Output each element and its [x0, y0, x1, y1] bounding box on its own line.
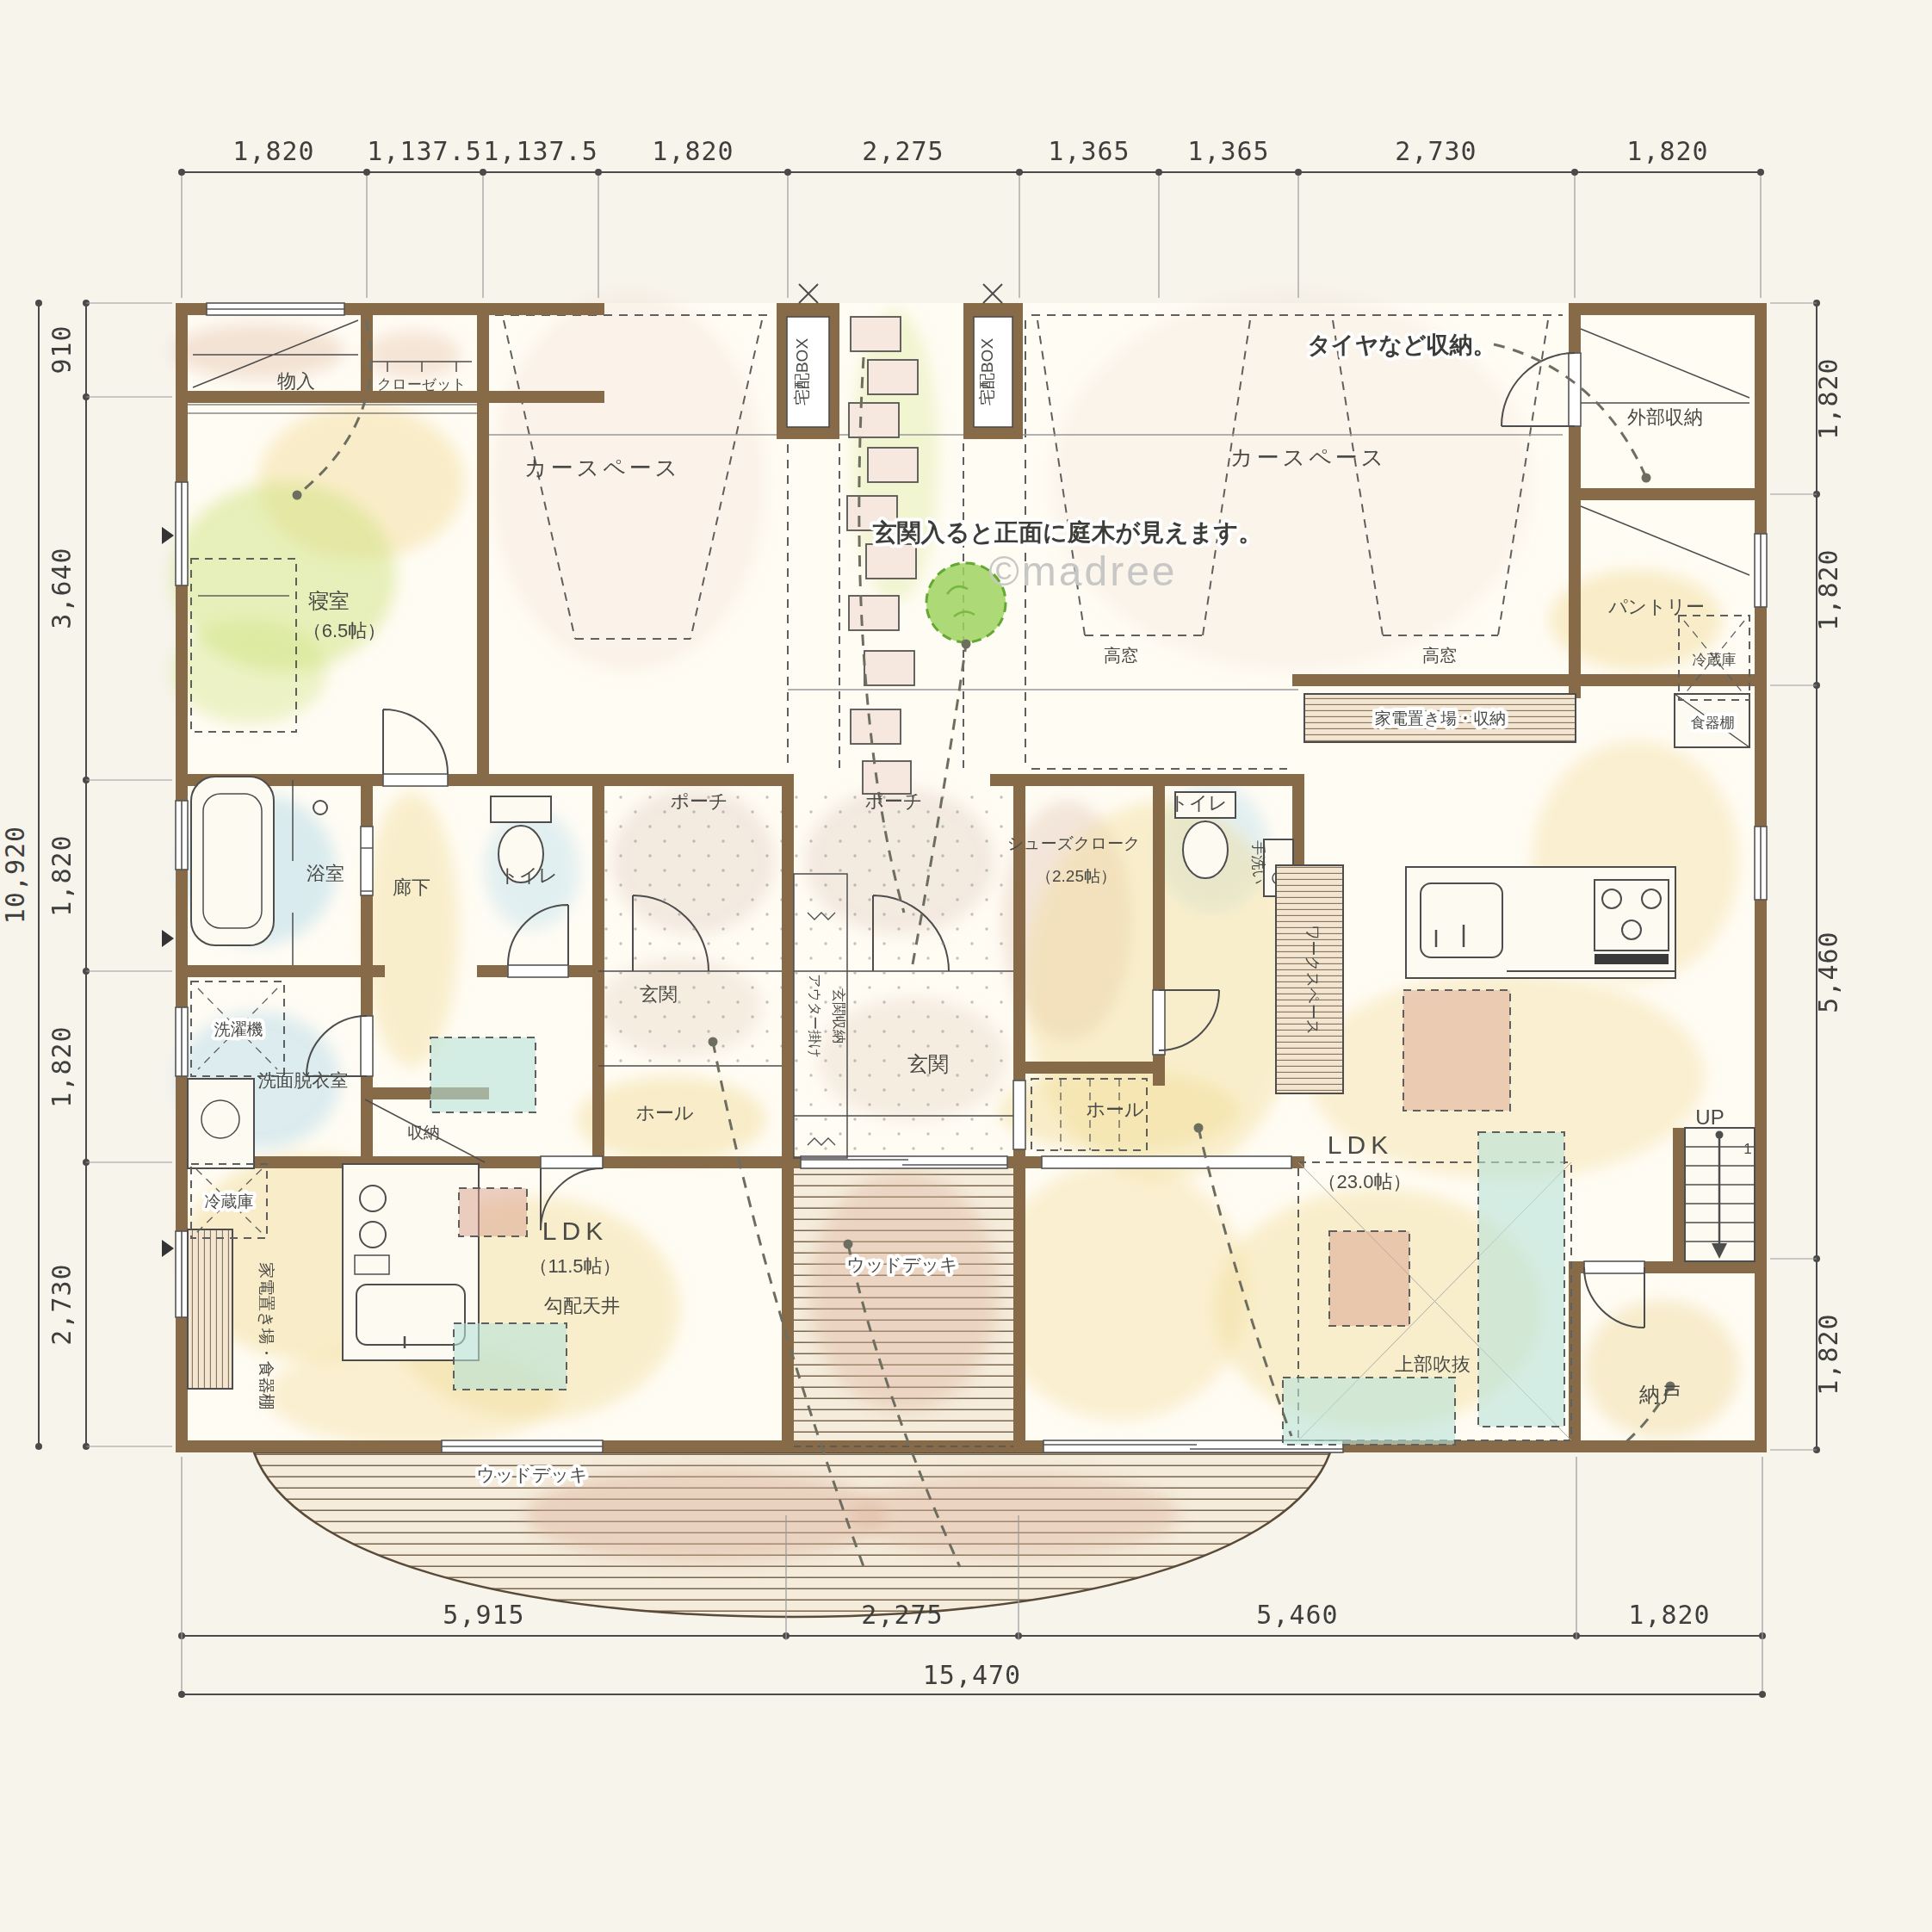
label-up: UP — [1695, 1105, 1724, 1129]
label-shoes-cloak-size: （2.25帖） — [1036, 867, 1117, 885]
label-kobai-tenjo: 勾配天井 — [544, 1295, 620, 1316]
dim-top-0: 1,820 — [232, 136, 314, 166]
sofa-tall — [1478, 1132, 1564, 1427]
toilet-left-tank — [491, 796, 551, 822]
label-nando: 納戸 — [1639, 1383, 1681, 1406]
label-genkan-left: 玄関 — [640, 983, 678, 1005]
label-ldk-right-size: （23.0帖） — [1318, 1171, 1412, 1192]
dim-left-1: 3,640 — [46, 547, 77, 629]
table-left — [459, 1188, 527, 1236]
annotation-garden-view: 玄関入ると正面に庭木が見えます。 — [872, 519, 1263, 546]
dim-left-total: 10,920 — [0, 826, 30, 924]
label-hall-right: ホール — [1086, 1099, 1144, 1120]
label-wood-deck-bottom: ウッドデッキ — [477, 1464, 588, 1484]
dim-bottom-1: 2,275 — [861, 1600, 943, 1630]
label-tearai: 手洗い — [1250, 840, 1266, 884]
label-toilet-right: トイレ — [1169, 792, 1228, 814]
label-shuno: 収納 — [407, 1124, 440, 1142]
label-fridge-right: 冷蔵庫 — [1693, 652, 1737, 668]
dim-right-2: 5,460 — [1813, 931, 1843, 1012]
label-senmen: 洗面脱衣室 — [258, 1070, 349, 1090]
label-ldk-right: LDK — [1328, 1130, 1393, 1159]
dining-table — [1403, 990, 1510, 1111]
label-monoire: 物入 — [277, 370, 315, 392]
vanity — [188, 1079, 254, 1168]
dim-bottom-3: 1,820 — [1628, 1600, 1710, 1630]
dim-right-1: 1,820 — [1813, 548, 1843, 630]
label-gaibu-shuno: 外部収納 — [1627, 406, 1703, 428]
label-pantry: パントリー — [1608, 596, 1705, 617]
dim-top-4: 2,275 — [862, 136, 944, 166]
label-carspace-left: カースペース — [524, 455, 681, 480]
toilet-right-bowl — [1183, 821, 1228, 878]
dim-top-8: 1,820 — [1626, 136, 1708, 166]
kaden-counter-left — [188, 1229, 232, 1389]
label-shoes-cloak: シューズクローク — [1007, 834, 1141, 852]
label-bedroom: 寝室 — [308, 589, 350, 612]
label-takuhai-left: 宅配BOX — [793, 338, 811, 406]
label-washer: 洗濯機 — [214, 1020, 263, 1038]
dim-top-7: 2,730 — [1395, 136, 1477, 166]
dim-top-2: 1,137.5 — [483, 136, 598, 166]
label-ldk-left: LDK — [542, 1217, 608, 1245]
dim-left-2: 1,820 — [46, 834, 77, 916]
label-takuhai-right: 宅配BOX — [978, 338, 996, 406]
label-wood-deck-mid: ウッドデッキ — [847, 1254, 958, 1274]
label-workspace: ワークスペース — [1304, 925, 1322, 1035]
label-porch-center: ポーチ — [864, 790, 922, 812]
label-genkan-shuno: 玄関収納 — [832, 988, 846, 1043]
label-kaden-shuno: 家電置き場・収納 — [1375, 709, 1506, 728]
dim-bottom-0: 5,915 — [443, 1600, 524, 1630]
dim-bottom-2: 5,460 — [1256, 1600, 1338, 1630]
gate-x-icon — [799, 284, 1002, 303]
label-roka: 廊下 — [393, 876, 430, 898]
vent-triangle-icon — [162, 527, 174, 1257]
label-closet: クローゼット — [377, 376, 467, 393]
floor-plan-page: 物入 クローゼット 寝室 （6.5帖） カースペース カースペース 宅配BOX … — [0, 0, 1932, 1932]
label-ldk-left-size: （11.5帖） — [529, 1255, 621, 1277]
label-carspace-right: カースペース — [1230, 444, 1387, 470]
label-hall-left: ホール — [635, 1102, 694, 1124]
label-outer-hook: アウター掛け — [808, 974, 822, 1058]
dim-top-3: 1,820 — [652, 136, 734, 166]
closet-rail — [372, 362, 472, 372]
dim-right-3: 1,820 — [1813, 1313, 1843, 1395]
dim-bottom-total: 15,470 — [923, 1660, 1021, 1690]
label-fukinuke: 上部吹抜 — [1395, 1353, 1471, 1375]
label-bath: 浴室 — [307, 863, 344, 884]
watermark: ©madree — [988, 548, 1177, 594]
floor-plan-svg: 物入 クローゼット 寝室 （6.5帖） カースペース カースペース 宅配BOX … — [0, 0, 1932, 1932]
dim-left-0: 910 — [46, 325, 77, 374]
bench-left — [430, 1037, 536, 1112]
dim-left-4: 2,730 — [46, 1263, 77, 1345]
label-takamado-left: 高窓 — [1104, 646, 1138, 665]
sofa-left — [454, 1323, 567, 1390]
dim-left-3: 1,820 — [46, 1025, 77, 1107]
dim-top-1: 1,137.5 — [367, 136, 481, 166]
label-stair-first: 1 — [1743, 1141, 1751, 1157]
label-porch-left: ポーチ — [670, 790, 728, 812]
label-bedroom-size: （6.5帖） — [303, 620, 387, 641]
dim-top-5: 1,365 — [1048, 136, 1130, 166]
annotation-tire-storage: タイヤなど収納。 — [1307, 332, 1495, 358]
dim-right-0: 1,820 — [1813, 357, 1843, 439]
label-toilet-left: トイレ — [499, 864, 558, 886]
label-takamado-right: 高窓 — [1422, 646, 1457, 665]
label-genkan-center: 玄関 — [907, 1052, 949, 1075]
label-fridge-left: 冷蔵庫 — [205, 1192, 254, 1211]
dim-top-6: 1,365 — [1187, 136, 1269, 166]
label-kaden-shokki: 家電置き場・食器棚 — [257, 1262, 276, 1409]
rug-red — [1329, 1231, 1409, 1326]
sofa-wide — [1283, 1378, 1455, 1445]
label-shokkidana: 食器棚 — [1691, 715, 1735, 731]
